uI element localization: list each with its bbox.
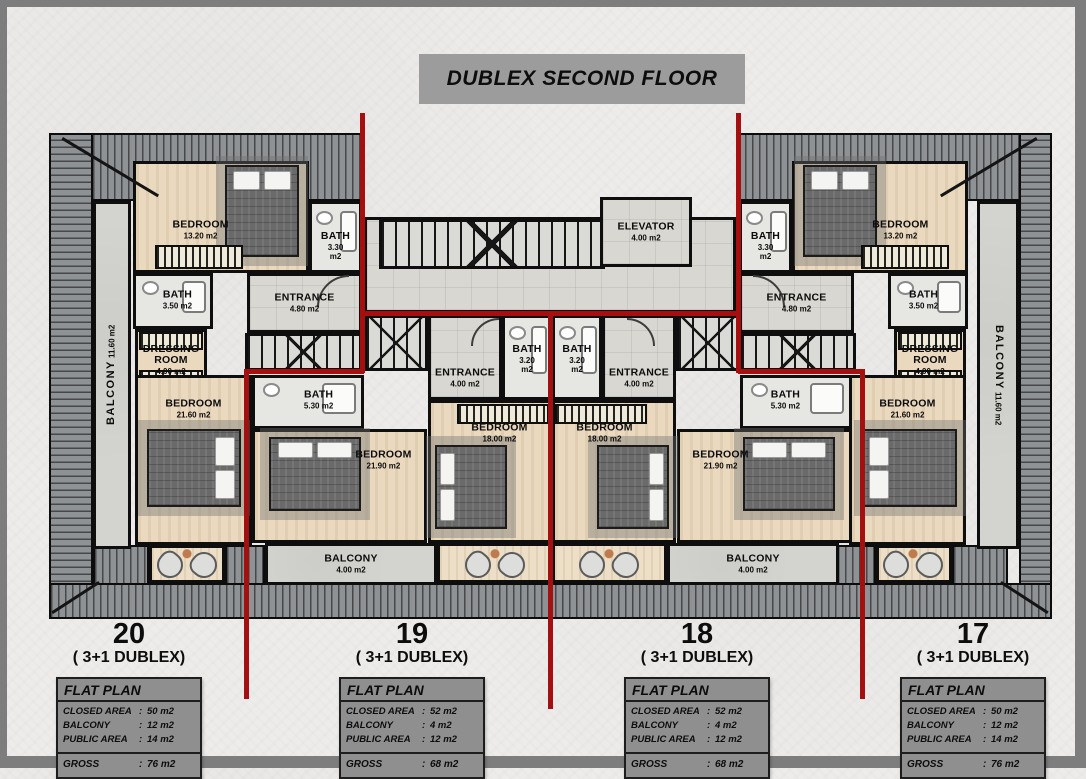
floor-plan-page: { "title": { "text": "DUBLEX SECOND FLOO… xyxy=(0,0,1086,768)
flat-plan-row: PUBLIC AREA:12 m2 xyxy=(631,733,763,747)
room-area-text: 4.00 m2 xyxy=(617,234,674,243)
bed xyxy=(743,437,835,511)
room-label: BEDROOM21.90 m2 xyxy=(355,450,411,471)
room-label: BATH5.30 m2 xyxy=(771,390,800,411)
room-bath-330-left: BATH3.30 m2 xyxy=(309,201,362,273)
unit-card-19: 19( 3+1 DUBLEX)FLAT PLANCLOSED AREA:52 m… xyxy=(318,619,506,779)
flat-plan-gross: GROSS:68 m2 xyxy=(626,752,768,778)
room-label: BATH3.20 m2 xyxy=(562,344,591,374)
room-area-text: 4.80 m2 xyxy=(767,305,827,314)
room-area-text: 3.20 m2 xyxy=(512,356,541,374)
room-name-text: BATH xyxy=(163,289,192,300)
row-colon: : xyxy=(983,758,991,773)
row-colon: : xyxy=(139,705,147,719)
room-elevator: ELEVATOR4.00 m2 xyxy=(600,197,692,267)
unit-number: 19 xyxy=(318,619,506,649)
row-label: BALCONY xyxy=(346,719,422,733)
room-area-text: 21.90 m2 xyxy=(355,462,411,471)
flat-plan-rows: CLOSED AREA:50 m2BALCONY:12 m2PUBLIC ARE… xyxy=(58,702,200,748)
row-value: 14 m2 xyxy=(991,733,1039,747)
room-label: ENTRANCE4.80 m2 xyxy=(767,292,827,313)
room-label: BATH3.20 m2 xyxy=(512,344,541,374)
row-label: GROSS xyxy=(907,758,983,773)
room-name-text: BEDROOM xyxy=(879,399,935,410)
flat-plan-header: FLAT PLAN xyxy=(626,679,768,702)
row-colon: : xyxy=(983,705,991,719)
room-label: BALCONY11.60 m2 xyxy=(980,204,1016,546)
flat-plan-gross: GROSS:76 m2 xyxy=(902,752,1044,778)
unit-divider-line xyxy=(738,369,862,374)
row-colon: : xyxy=(983,733,991,747)
row-label: BALCONY xyxy=(63,719,139,733)
unit-number: 18 xyxy=(603,619,791,649)
room-label: DRESSING ROOM4.00 m2 xyxy=(143,344,199,376)
room-stairs-unit19 xyxy=(364,315,428,371)
flat-plan-header: FLAT PLAN xyxy=(58,679,200,702)
room-label: BEDROOM18.00 m2 xyxy=(471,423,527,444)
unit-card-20: 20( 3+1 DUBLEX)FLAT PLANCLOSED AREA:50 m… xyxy=(35,619,223,779)
room-name-text: BEDROOM xyxy=(355,450,411,461)
room-bath-320-right: BATH3.20 m2 xyxy=(552,315,602,400)
room-area-text: 4.00 m2 xyxy=(726,566,779,575)
room-label: BEDROOM13.20 m2 xyxy=(172,219,228,240)
flat-plan-row: CLOSED AREA:50 m2 xyxy=(63,705,195,719)
gross-row: GROSS:68 m2 xyxy=(631,758,763,773)
unit-card-18: 18( 3+1 DUBLEX)FLAT PLANCLOSED AREA:52 m… xyxy=(603,619,791,779)
unit-divider-line xyxy=(548,311,553,709)
unit-divider-line xyxy=(244,369,249,699)
row-label: BALCONY xyxy=(631,719,707,733)
unit-type-label: ( 3+1 DUBLEX) xyxy=(35,649,223,667)
chairs-set xyxy=(465,548,525,580)
room-name-text: BEDROOM xyxy=(172,219,228,230)
room-label: ENTRANCE4.00 m2 xyxy=(609,368,669,389)
room-label: BATH3.50 m2 xyxy=(909,289,938,310)
row-value: 52 m2 xyxy=(430,705,478,719)
wardrobe xyxy=(155,245,243,269)
flat-plan-row: BALCONY:4 m2 xyxy=(346,719,478,733)
room-name-text: ENTRANCE xyxy=(767,292,827,303)
bed xyxy=(597,445,669,529)
gross-row: GROSS:68 m2 xyxy=(346,758,478,773)
flat-plan-row: CLOSED AREA:52 m2 xyxy=(631,705,763,719)
room-area-text: 4.00 m2 xyxy=(435,380,495,389)
room-area-text: 21.60 m2 xyxy=(165,411,221,420)
room-name-text: ENTRANCE xyxy=(435,368,495,379)
gross-row: GROSS:76 m2 xyxy=(63,758,195,773)
room-bath-350-left: BATH3.50 m2 xyxy=(133,273,213,329)
room-name-text: BATH xyxy=(512,344,541,355)
flat-plan-gross: GROSS:76 m2 xyxy=(58,752,200,778)
room-bath-320-left: BATH3.20 m2 xyxy=(502,315,552,400)
row-colon: : xyxy=(422,719,430,733)
room-name-text: BATH xyxy=(321,231,350,242)
room-name-text: BATH xyxy=(304,390,333,401)
room-name-text: BATH xyxy=(562,344,591,355)
unit-divider-line xyxy=(736,113,741,373)
room-name-text: BEDROOM xyxy=(576,423,632,434)
bed xyxy=(435,445,507,529)
row-colon: : xyxy=(707,758,715,773)
flat-plan-rows: CLOSED AREA:52 m2BALCONY:4 m2PUBLIC AREA… xyxy=(341,702,483,748)
room-bath-350-right: BATH3.50 m2 xyxy=(888,273,968,329)
gross-row: GROSS:76 m2 xyxy=(907,758,1039,773)
room-area-text: 3.30 m2 xyxy=(321,243,350,261)
row-value: 76 m2 xyxy=(147,758,195,773)
row-value: 12 m2 xyxy=(430,733,478,747)
chairs-set xyxy=(883,548,943,580)
row-value: 12 m2 xyxy=(715,733,763,747)
room-area-text: 13.20 m2 xyxy=(872,231,928,240)
room-name-text: BALCONY xyxy=(106,360,118,425)
unit-card-17: 17( 3+1 DUBLEX)FLAT PLANCLOSED AREA:50 m… xyxy=(879,619,1067,779)
room-stairs-main xyxy=(379,219,605,269)
row-colon: : xyxy=(139,733,147,747)
row-colon: : xyxy=(139,758,147,773)
room-label: BALCONY4.00 m2 xyxy=(324,553,377,574)
row-value: 4 m2 xyxy=(430,719,478,733)
roof-section xyxy=(952,545,1008,585)
row-value: 12 m2 xyxy=(147,719,195,733)
bed xyxy=(803,165,877,257)
room-name-text: BALCONY xyxy=(726,553,779,564)
row-label: PUBLIC AREA xyxy=(63,733,139,747)
room-name-text: ENTRANCE xyxy=(275,292,335,303)
room-area-text: 4.00 m2 xyxy=(143,367,199,376)
row-label: CLOSED AREA xyxy=(63,705,139,719)
room-label: BEDROOM18.00 m2 xyxy=(576,423,632,444)
room-area-text: 4.00 m2 xyxy=(324,566,377,575)
row-value: 52 m2 xyxy=(715,705,763,719)
row-label: GROSS xyxy=(346,758,422,773)
unit-type-label: ( 3+1 DUBLEX) xyxy=(318,649,506,667)
room-bath-530-left: BATH5.30 m2 xyxy=(252,375,364,429)
row-value: 68 m2 xyxy=(715,758,763,773)
row-colon: : xyxy=(707,705,715,719)
flat-plan-row: BALCONY:12 m2 xyxy=(63,719,195,733)
flat-plan-row: PUBLIC AREA:14 m2 xyxy=(63,733,195,747)
chairs-set xyxy=(579,548,639,580)
room-name-text: BALCONY xyxy=(324,553,377,564)
room-label: BATH3.50 m2 xyxy=(163,289,192,310)
row-value: 50 m2 xyxy=(991,705,1039,719)
unit-number: 17 xyxy=(879,619,1067,649)
unit-divider-line xyxy=(860,369,865,699)
room-area-text: 18.00 m2 xyxy=(576,435,632,444)
row-label: GROSS xyxy=(631,758,707,773)
room-label: ELEVATOR4.00 m2 xyxy=(617,221,674,242)
room-name-text: BATH xyxy=(909,289,938,300)
room-bath-530-right: BATH5.30 m2 xyxy=(740,375,852,429)
room-area-text: 11.60 m2 xyxy=(994,392,1003,425)
bed xyxy=(269,437,361,511)
room-stairs-unit17 xyxy=(739,333,856,371)
room-area-text: 4.00 m2 xyxy=(609,380,669,389)
unit-type-label: ( 3+1 DUBLEX) xyxy=(879,649,1067,667)
flat-plan-rows: CLOSED AREA:50 m2BALCONY:12 m2PUBLIC ARE… xyxy=(902,702,1044,748)
room-label: DRESSING ROOM4.00 m2 xyxy=(902,344,958,376)
chairs-set xyxy=(157,548,217,580)
row-value: 4 m2 xyxy=(715,719,763,733)
room-label: BEDROOM13.20 m2 xyxy=(872,219,928,240)
flat-plan-header: FLAT PLAN xyxy=(341,679,483,702)
room-label: BATH5.30 m2 xyxy=(304,390,333,411)
room-label: BATH3.30 m2 xyxy=(321,231,350,261)
room-name-text: ELEVATOR xyxy=(617,221,674,232)
flat-plan-header: FLAT PLAN xyxy=(902,679,1044,702)
wardrobe xyxy=(861,245,949,269)
room-balcony-right: BALCONY11.60 m2 xyxy=(977,201,1019,549)
row-colon: : xyxy=(983,719,991,733)
room-balcony-left: BALCONY11.60 m2 xyxy=(93,201,131,549)
flat-plan-table: FLAT PLANCLOSED AREA:50 m2BALCONY:12 m2P… xyxy=(56,677,202,779)
bed xyxy=(225,165,299,257)
roof-section xyxy=(49,133,93,619)
row-value: 14 m2 xyxy=(147,733,195,747)
room-label: BEDROOM21.60 m2 xyxy=(879,399,935,420)
unit-divider-line xyxy=(360,113,365,373)
page-title: DUBLEX SECOND FLOOR xyxy=(419,54,745,104)
roof-section xyxy=(836,545,876,585)
room-label: ENTRANCE4.80 m2 xyxy=(275,292,335,313)
row-label: PUBLIC AREA xyxy=(907,733,983,747)
room-name-text: BEDROOM xyxy=(165,399,221,410)
flat-plan-row: BALCONY:12 m2 xyxy=(907,719,1039,733)
row-value: 76 m2 xyxy=(991,758,1039,773)
flat-plan-row: PUBLIC AREA:14 m2 xyxy=(907,733,1039,747)
bed xyxy=(863,429,957,507)
room-area-text: 3.30 m2 xyxy=(751,243,780,261)
floor-plan: BALCONY11.60 m2BALCONY11.60 m2ELEVATOR4.… xyxy=(47,125,1053,625)
room-label: BATH3.30 m2 xyxy=(751,231,780,261)
flat-plan-gross: GROSS:68 m2 xyxy=(341,752,483,778)
room-name-text: DRESSING ROOM xyxy=(902,344,958,366)
room-name-text: ENTRANCE xyxy=(609,368,669,379)
row-label: CLOSED AREA xyxy=(346,705,422,719)
room-bath-330-right: BATH3.30 m2 xyxy=(739,201,792,273)
flat-plan-row: PUBLIC AREA:12 m2 xyxy=(346,733,478,747)
row-colon: : xyxy=(422,705,430,719)
row-label: PUBLIC AREA xyxy=(346,733,422,747)
roof-section xyxy=(93,545,149,585)
room-area-text: 13.20 m2 xyxy=(172,231,228,240)
room-area-text: 21.90 m2 xyxy=(692,462,748,471)
row-label: PUBLIC AREA xyxy=(631,733,707,747)
room-area-text: 3.50 m2 xyxy=(163,302,192,311)
row-value: 50 m2 xyxy=(147,705,195,719)
room-stairs-unit20 xyxy=(245,333,362,371)
row-colon: : xyxy=(707,733,715,747)
room-name-text: DRESSING ROOM xyxy=(143,344,199,366)
row-colon: : xyxy=(707,719,715,733)
row-value: 68 m2 xyxy=(430,758,478,773)
room-name-text: BEDROOM xyxy=(692,450,748,461)
room-area-text: 4.00 m2 xyxy=(902,367,958,376)
room-name-text: BATH xyxy=(771,390,800,401)
room-area-text: 5.30 m2 xyxy=(304,402,333,411)
room-balcony-400-right: BALCONY4.00 m2 xyxy=(667,543,839,585)
room-name-text: BALCONY xyxy=(992,325,1004,390)
row-colon: : xyxy=(139,719,147,733)
room-name-text: BEDROOM xyxy=(471,423,527,434)
roof-section xyxy=(1019,133,1052,619)
room-area-text: 3.50 m2 xyxy=(909,302,938,311)
row-label: BALCONY xyxy=(907,719,983,733)
room-label: BEDROOM21.90 m2 xyxy=(692,450,748,471)
flat-plan-table: FLAT PLANCLOSED AREA:52 m2BALCONY:4 m2PU… xyxy=(624,677,770,779)
room-label: BALCONY11.60 m2 xyxy=(96,204,128,546)
room-name-text: BEDROOM xyxy=(872,219,928,230)
row-colon: : xyxy=(422,733,430,747)
row-label: CLOSED AREA xyxy=(631,705,707,719)
unit-type-label: ( 3+1 DUBLEX) xyxy=(603,649,791,667)
flat-plan-rows: CLOSED AREA:52 m2BALCONY:4 m2PUBLIC AREA… xyxy=(626,702,768,748)
room-area-text: 4.80 m2 xyxy=(275,305,335,314)
flat-plan-row: CLOSED AREA:52 m2 xyxy=(346,705,478,719)
room-balcony-400-left: BALCONY4.00 m2 xyxy=(265,543,437,585)
row-label: CLOSED AREA xyxy=(907,705,983,719)
room-label: ENTRANCE4.00 m2 xyxy=(435,368,495,389)
room-name-text: BATH xyxy=(751,231,780,242)
unit-divider-line xyxy=(244,369,364,374)
room-area-text: 5.30 m2 xyxy=(771,402,800,411)
bed xyxy=(147,429,241,507)
room-area-text: 11.60 m2 xyxy=(108,325,117,358)
flat-plan-table: FLAT PLANCLOSED AREA:52 m2BALCONY:4 m2PU… xyxy=(339,677,485,779)
row-label: GROSS xyxy=(63,758,139,773)
room-label: BALCONY4.00 m2 xyxy=(726,553,779,574)
flat-plan-table: FLAT PLANCLOSED AREA:50 m2BALCONY:12 m2P… xyxy=(900,677,1046,779)
row-colon: : xyxy=(422,758,430,773)
room-area-text: 21.60 m2 xyxy=(879,411,935,420)
room-area-text: 3.20 m2 xyxy=(562,356,591,374)
room-stairs-unit18 xyxy=(676,315,740,371)
flat-plan-row: BALCONY:4 m2 xyxy=(631,719,763,733)
unit-number: 20 xyxy=(35,619,223,649)
flat-plan-row: CLOSED AREA:50 m2 xyxy=(907,705,1039,719)
row-value: 12 m2 xyxy=(991,719,1039,733)
room-label: BEDROOM21.60 m2 xyxy=(165,399,221,420)
room-area-text: 18.00 m2 xyxy=(471,435,527,444)
